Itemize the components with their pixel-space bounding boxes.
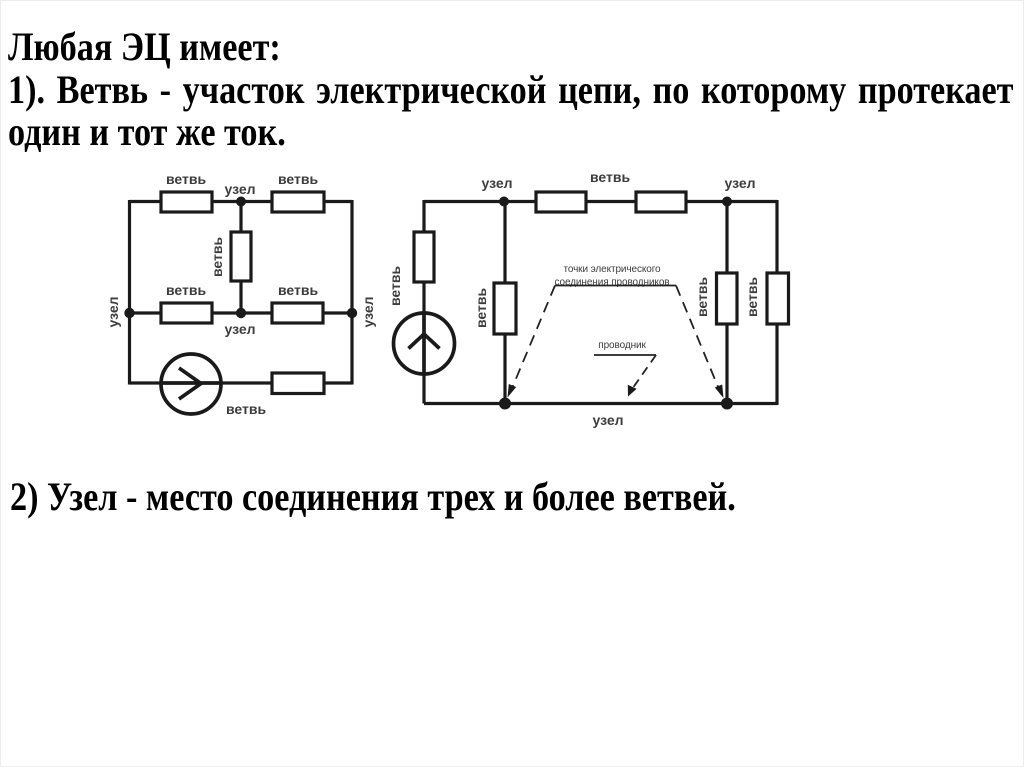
- svg-text:узел: узел: [224, 181, 255, 197]
- svg-text:узел: узел: [360, 296, 376, 327]
- svg-text:ветвь: ветвь: [226, 401, 266, 417]
- svg-text:ветвь: ветвь: [166, 282, 206, 298]
- svg-text:узел: узел: [224, 321, 255, 337]
- svg-text:узел: узел: [592, 412, 623, 428]
- svg-text:проводник: проводник: [598, 340, 646, 351]
- svg-text:ветвь: ветвь: [694, 277, 710, 317]
- svg-text:узел: узел: [105, 296, 121, 327]
- svg-text:ветвь: ветвь: [278, 282, 318, 298]
- svg-text:ветвь: ветвь: [387, 266, 403, 306]
- svg-text:ветвь: ветвь: [209, 237, 225, 277]
- svg-text:ветвь: ветвь: [166, 171, 206, 187]
- svg-text:ветвь: ветвь: [278, 171, 318, 187]
- svg-text:точки электрического: точки электрического: [563, 264, 661, 275]
- svg-text:ветвь: ветвь: [590, 169, 630, 185]
- svg-text:ветвь: ветвь: [744, 277, 760, 317]
- svg-text:ветвь: ветвь: [473, 288, 489, 328]
- svg-text:узел: узел: [724, 175, 755, 191]
- svg-text:узел: узел: [481, 175, 512, 191]
